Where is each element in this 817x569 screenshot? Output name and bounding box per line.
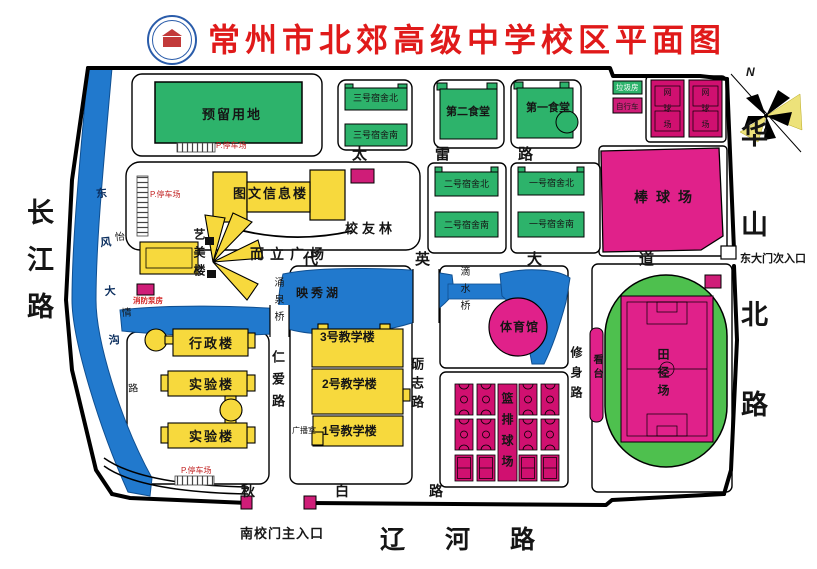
teach3-label: 3号教学楼 bbox=[320, 331, 375, 343]
emblem-building-roof bbox=[162, 29, 182, 36]
road-qiubai: 秋白路 bbox=[241, 484, 523, 498]
school-emblem bbox=[147, 15, 197, 65]
canteen1-label: 第一食堂 bbox=[526, 103, 570, 114]
fire-pump-label: 消防泵房 bbox=[133, 297, 163, 305]
teach1-label: 1号教学楼 bbox=[322, 425, 377, 437]
parking-strip-left bbox=[137, 176, 148, 236]
emblem-building-body bbox=[163, 37, 181, 47]
parking-label-left: P.停车场 bbox=[150, 191, 181, 199]
parking-label-bottom: P.停车场 bbox=[181, 467, 212, 475]
dorm2n-label: 二号宿舍北 bbox=[444, 180, 489, 189]
art-annex-2 bbox=[207, 270, 216, 278]
track-label: 田径场 bbox=[657, 348, 669, 402]
road-lizhi: 砺志路 bbox=[410, 357, 423, 414]
compass-north-label: N bbox=[746, 66, 755, 78]
parking-label-top: P.停车场 bbox=[216, 142, 247, 150]
broadcast-label: 广播室 bbox=[292, 427, 316, 435]
trash-house-label: 垃圾房 bbox=[616, 84, 639, 92]
road-renai: 仁爱路 bbox=[271, 350, 284, 416]
road-huashanbei: 华山北路 bbox=[738, 120, 765, 480]
road-daiying: 代英大道 bbox=[303, 252, 751, 267]
lab2-label: 实验楼 bbox=[189, 430, 234, 443]
dorm2s-label: 二号宿舍南 bbox=[444, 221, 489, 230]
grandstand-label: 看台 bbox=[591, 354, 601, 382]
reserved-land-label: 预留用地 bbox=[202, 108, 262, 121]
road-liaohe: 辽河路 bbox=[380, 528, 575, 553]
art-building-label: 艺美楼 bbox=[193, 228, 205, 282]
art-annex-1 bbox=[205, 237, 214, 245]
admin-label: 行政楼 bbox=[189, 337, 234, 350]
teach2-label: 2号教学楼 bbox=[322, 378, 377, 390]
road-changjiang: 长江路 bbox=[24, 198, 51, 339]
bridge-dishui bbox=[413, 269, 439, 323]
parking-strip-bottom bbox=[175, 476, 214, 485]
dorm3n-label: 三号宿舍北 bbox=[353, 94, 398, 103]
courts-label: 篮排球场 bbox=[501, 392, 513, 476]
bridge-dishui-label: 滴水桥 bbox=[458, 266, 468, 317]
canteen2-label: 第二食堂 bbox=[446, 107, 490, 118]
tennis1-label: 网球场 bbox=[663, 88, 671, 136]
dorm1n-label: 一号宿舍北 bbox=[529, 179, 574, 188]
library-label: 图文信息楼 bbox=[233, 187, 308, 200]
south-gate-label: 南校门主入口 bbox=[240, 527, 324, 540]
baseball-label: 棒球场 bbox=[634, 190, 700, 204]
gym-label: 体育馆 bbox=[500, 321, 539, 333]
fire-pump-box bbox=[137, 284, 154, 295]
dorm1s-label: 一号宿舍南 bbox=[529, 220, 574, 229]
facility-box-library bbox=[351, 169, 374, 183]
alumni-grove-label: 校友林 bbox=[345, 222, 396, 235]
facility-box-track bbox=[705, 275, 721, 288]
page-title: 常州市北郊高级中学校区平面图 bbox=[208, 24, 726, 56]
tennis2-label: 网球场 bbox=[701, 88, 709, 136]
dorm3s-label: 三号宿舍南 bbox=[353, 131, 398, 140]
bridge-yongquan-label: 涌泉桥 bbox=[272, 277, 282, 328]
lake-label: 映秀湖 bbox=[296, 287, 341, 299]
lab1-label: 实验楼 bbox=[189, 378, 234, 391]
plaza-label: 而立广场 bbox=[250, 247, 330, 261]
road-xiushen: 修身路 bbox=[570, 346, 582, 406]
road-tailei: 太雷路 bbox=[352, 147, 601, 162]
campus-map: 常州市北郊高级中学校区平面图 长江路 华山北路 辽河路 太雷路 代英大道 秋白路… bbox=[0, 0, 817, 569]
bike-shed-label: 自行车 bbox=[616, 103, 639, 111]
parking-strip-top bbox=[177, 143, 215, 152]
east-gate-label: 东大门次入口 bbox=[740, 254, 806, 265]
